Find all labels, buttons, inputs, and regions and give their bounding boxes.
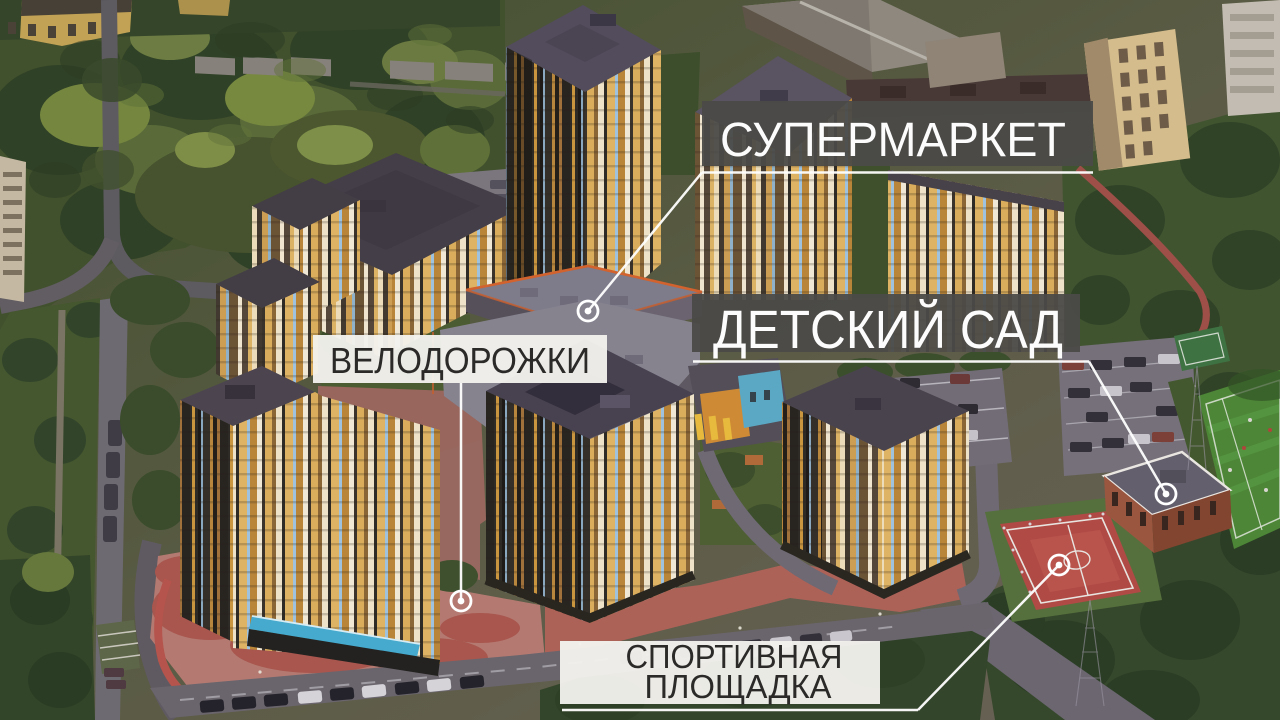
svg-text:ДЕТСКИЙ САД: ДЕТСКИЙ САД bbox=[713, 299, 1063, 360]
svg-text:ПЛОЩАДКА: ПЛОЩАДКА bbox=[645, 669, 833, 706]
svg-text:ВЕЛОДОРОЖКИ: ВЕЛОДОРОЖКИ bbox=[330, 340, 590, 381]
svg-text:СУПЕРМАРКЕТ: СУПЕРМАРКЕТ bbox=[720, 114, 1066, 167]
